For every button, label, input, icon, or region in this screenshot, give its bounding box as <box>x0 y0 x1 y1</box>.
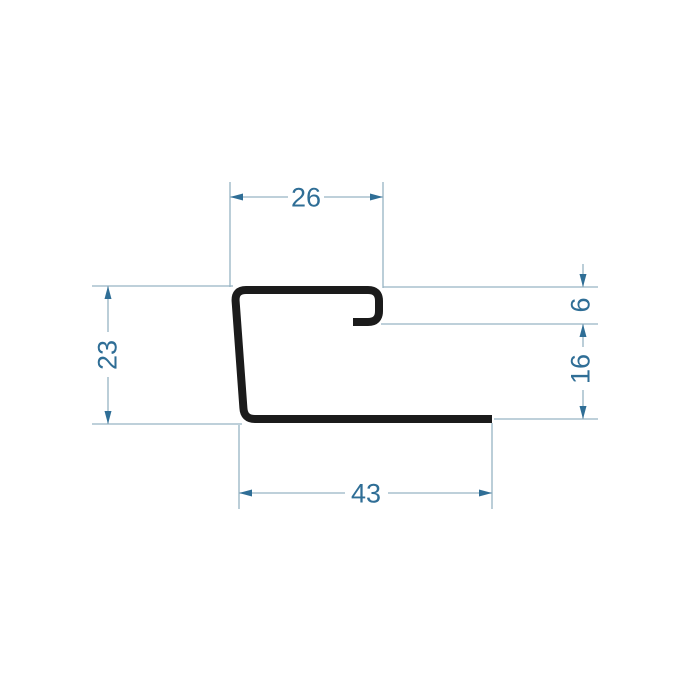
dimension-label-bottom-width: 43 <box>351 479 381 509</box>
arrow-right-icon <box>370 194 383 201</box>
arrow-right-icon <box>479 490 492 497</box>
drawing-canvas: 26 23 6 16 <box>0 0 700 700</box>
profile-outline <box>236 290 492 419</box>
arrow-up-icon <box>580 324 587 337</box>
dimension-right-hook-gap: 6 <box>381 264 598 324</box>
dimension-label-top-width: 26 <box>291 183 321 213</box>
dimension-label-right-lower-height: 16 <box>566 354 596 384</box>
dimension-label-left-height: 23 <box>93 340 123 370</box>
arrow-down-icon <box>105 411 112 424</box>
arrow-down-icon <box>580 406 587 419</box>
arrow-left-icon <box>230 194 243 201</box>
arrow-up-icon <box>105 286 112 299</box>
dimension-bottom-width: 43 <box>239 423 492 509</box>
dimension-label-right-hook-gap: 6 <box>566 297 596 312</box>
dimension-top-width: 26 <box>230 182 383 288</box>
dimension-right-lower-height: 16 <box>494 324 598 419</box>
arrow-down-icon <box>580 274 587 287</box>
arrow-left-icon <box>239 490 252 497</box>
dimension-left-height: 23 <box>92 286 242 424</box>
profile-drawing: 26 23 6 16 <box>0 0 700 700</box>
